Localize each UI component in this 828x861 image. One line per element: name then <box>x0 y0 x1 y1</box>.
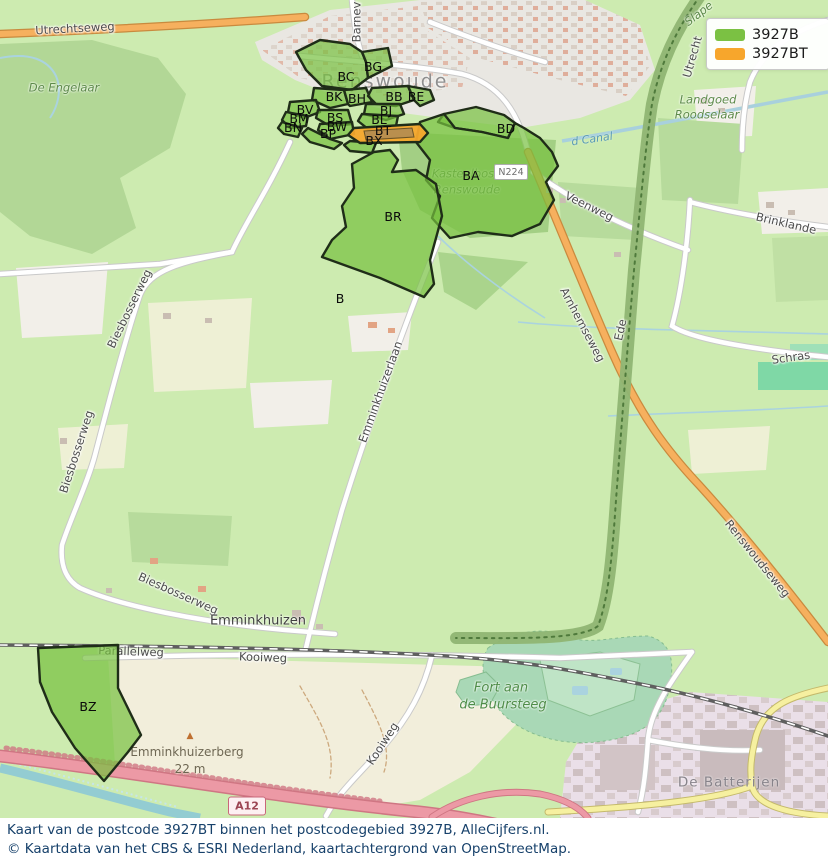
page: UtrechtsewegDe EngelaarBarnevRenswoudeSl… <box>0 0 828 861</box>
legend-swatch-orange <box>715 48 745 60</box>
map-legend: 3927B 3927BT <box>706 18 828 70</box>
caption-line-1: Kaart van de postcode 3927BT binnen het … <box>0 818 828 840</box>
caption: Kaart van de postcode 3927BT binnen het … <box>0 818 828 861</box>
n224-road-shield: N224 <box>494 164 528 180</box>
legend-row-3927bt: 3927BT <box>715 44 821 63</box>
legend-row-3927b: 3927B <box>715 25 821 44</box>
caption-line-2: © Kaartdata van het CBS & ESRI Nederland… <box>0 840 828 859</box>
peak-marker-icon: ▲ <box>187 731 194 741</box>
legend-swatch-green <box>715 29 745 41</box>
base-map-svg <box>0 0 828 818</box>
a12-road-shield: A12 <box>228 797 266 816</box>
legend-label-3927b: 3927B <box>752 27 799 43</box>
legend-label-3927bt: 3927BT <box>752 46 808 62</box>
map-canvas: UtrechtsewegDe EngelaarBarnevRenswoudeSl… <box>0 0 828 818</box>
